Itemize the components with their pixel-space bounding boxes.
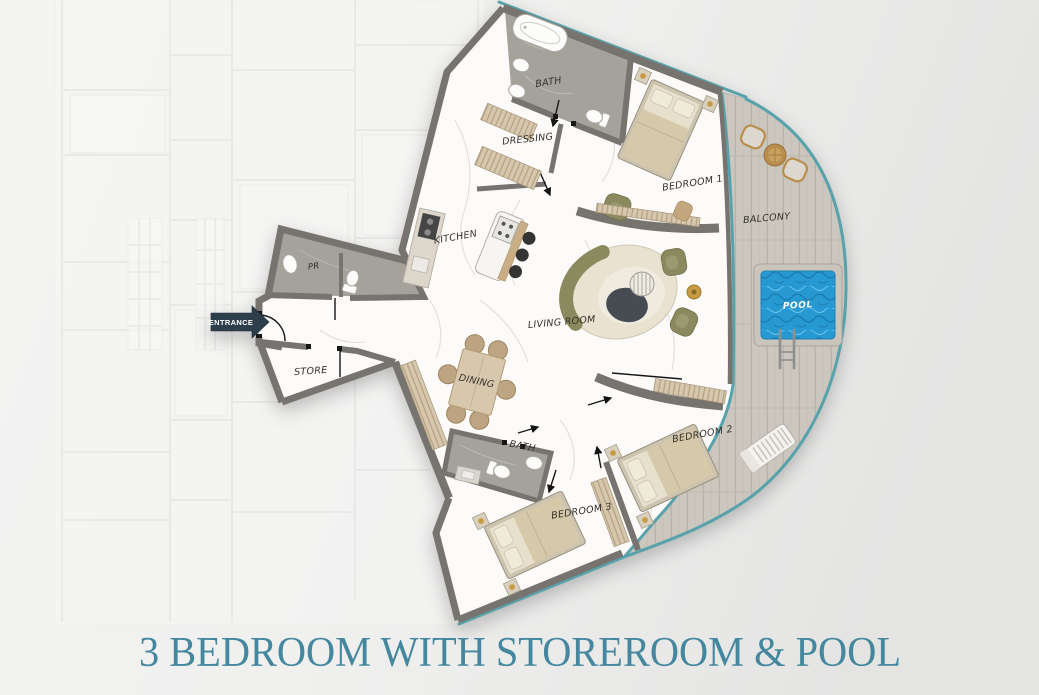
coffee-table	[630, 272, 654, 296]
side-table	[687, 285, 701, 299]
kitchen-sink	[411, 256, 430, 273]
room-label-pr: PR	[307, 261, 320, 272]
balcony-table	[764, 144, 786, 166]
entrance-label: ENTRANCE	[209, 318, 253, 327]
page-title: 3 BEDROOM WITH STOREROOM & POOL	[139, 630, 901, 676]
room-label-pool: POOL	[783, 300, 814, 312]
floorplan-page: POOL ENTRANCE BATH DRESSING BEDROOM 1 KI…	[0, 0, 1039, 695]
room-label-store: STORE	[294, 365, 328, 378]
